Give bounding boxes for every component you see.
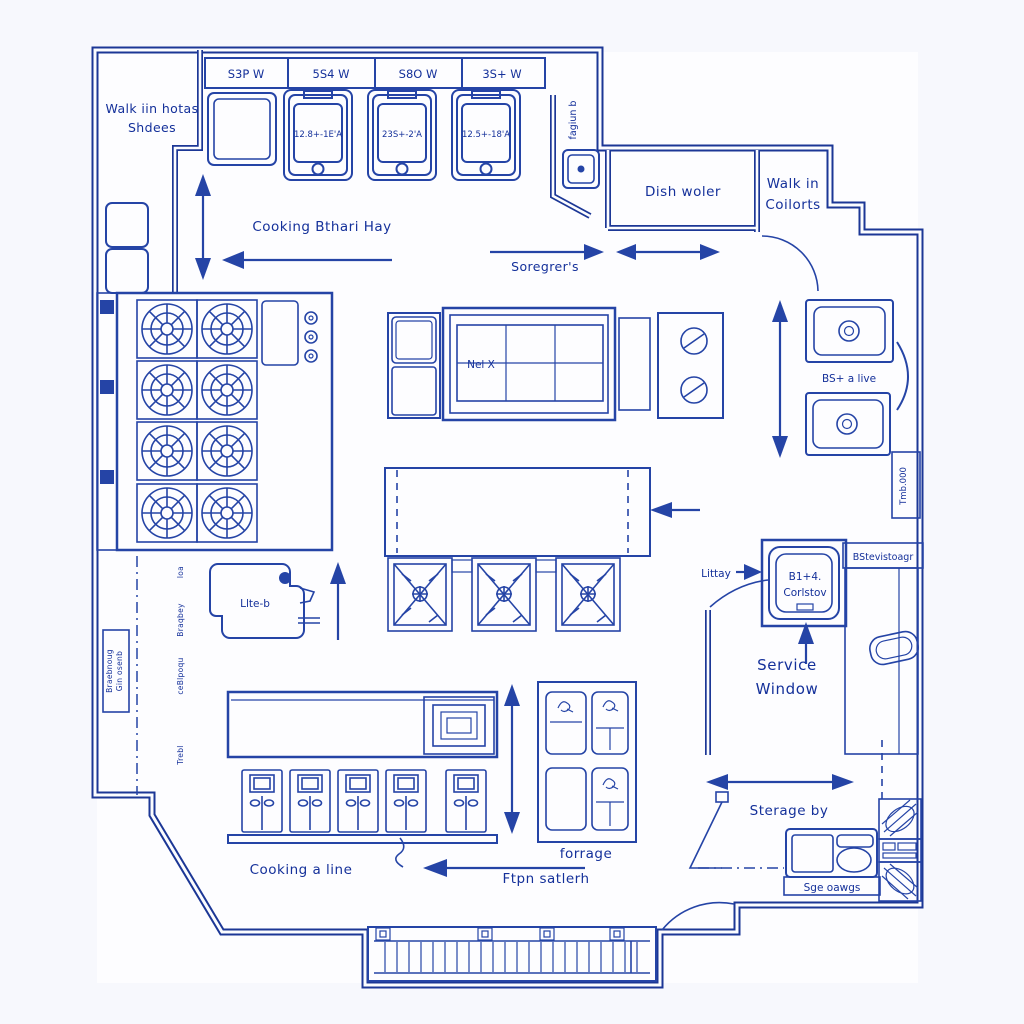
llte-label: Llte-b — [240, 598, 270, 610]
fryer-3-label: 12.5+-18'A — [462, 130, 510, 140]
side-note-3: ceBlpoqu — [176, 657, 185, 694]
wall-note-1: Braebnoug — [105, 649, 114, 693]
bstevistoag-label: BStevistoagr — [853, 552, 914, 563]
corlstov-label-1: B1+4. — [789, 571, 822, 583]
walk-in-right-label-1: Walk in — [767, 176, 819, 192]
fryer-2-label: 23S+-2'A — [382, 130, 422, 140]
nel-x-label: Nel X — [467, 359, 495, 371]
dim-label-4: 3S+ W — [482, 67, 521, 81]
forrage-label: forrage — [560, 846, 613, 862]
tmb-label: Tmb.000 — [899, 467, 909, 506]
dim-label-1: S3P W — [228, 67, 265, 81]
soregrers-label: Soregrer's — [511, 259, 579, 274]
cooking-line-label: Cooking a line — [250, 862, 353, 878]
ftpn-label: Ftpn satlerh — [503, 871, 590, 887]
walk-in-top-label-2: Shdees — [128, 120, 176, 135]
service-label-2: Window — [756, 680, 819, 698]
cooking-hay-label: Cooking Bthari Hay — [252, 219, 391, 235]
fagiun-label: fagiun b — [568, 101, 579, 140]
dim-label-3: S8O W — [399, 67, 438, 81]
dim-label-2: 5S4 W — [313, 67, 350, 81]
dish-room-label: Dish woler — [645, 184, 721, 200]
fryer-1-label: 12.8+-1E'A — [294, 130, 342, 140]
side-note-2: Braqbey — [176, 603, 185, 637]
walk-in-right-label-2: Coilorts — [765, 197, 820, 213]
storage-label: Sterage by — [750, 803, 829, 819]
bs-live-label: BS+ a live — [822, 373, 876, 385]
corlstov-label-2: Corlstov — [783, 587, 826, 599]
wall-note-2: Gin osenb — [115, 651, 124, 691]
side-note-1: loa — [176, 566, 185, 578]
littay-label: Littay — [701, 568, 731, 580]
service-label-1: Service — [757, 656, 817, 674]
kitchen-floor-plan: S3P W 5S4 W S8O W 3S+ W 12.8+-1E'A 23S+-… — [0, 0, 1024, 1024]
sge-ouwgs-label: Sge oawgs — [804, 882, 861, 894]
side-note-4: Trebl — [176, 745, 185, 765]
blueprint-page: S3P W 5S4 W S8O W 3S+ W 12.8+-1E'A 23S+-… — [0, 0, 1024, 1024]
walk-in-top-label-1: Walk iin hotas — [106, 101, 199, 116]
